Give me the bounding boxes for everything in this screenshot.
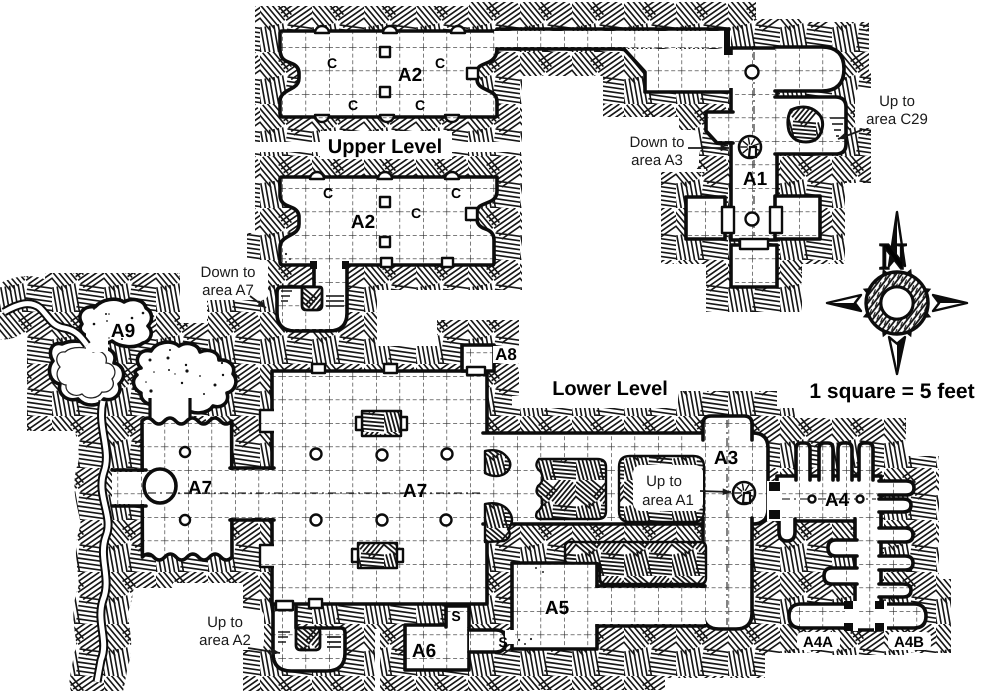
- svg-text:A6: A6: [412, 641, 436, 662]
- svg-text:A8: A8: [495, 345, 517, 364]
- svg-text:C: C: [451, 185, 461, 201]
- svg-text:A5: A5: [545, 598, 570, 619]
- svg-text:Up to: Up to: [879, 93, 915, 110]
- svg-text:C: C: [323, 185, 333, 201]
- svg-text:A7: A7: [188, 478, 212, 499]
- svg-text:A9: A9: [111, 321, 135, 342]
- svg-text:C: C: [327, 55, 337, 71]
- svg-text:A1: A1: [743, 169, 768, 190]
- svg-text:area C29: area C29: [866, 111, 928, 128]
- svg-text:C: C: [411, 205, 421, 221]
- svg-text:A4A: A4A: [803, 634, 833, 651]
- svg-text:A4B: A4B: [894, 634, 924, 651]
- svg-text:A3: A3: [714, 448, 738, 469]
- svg-text:A4: A4: [825, 490, 850, 511]
- svg-text:A2: A2: [398, 65, 422, 86]
- svg-text:area A1: area A1: [642, 492, 694, 509]
- svg-text:A2: A2: [351, 212, 375, 233]
- svg-text:area A3: area A3: [631, 152, 683, 169]
- svg-text:A7: A7: [403, 481, 427, 502]
- svg-text:S: S: [498, 634, 507, 650]
- svg-text:Up to: Up to: [207, 614, 243, 631]
- svg-text:C: C: [435, 55, 445, 71]
- svg-text:1 square = 5 feet: 1 square = 5 feet: [809, 380, 974, 403]
- svg-text:area A7: area A7: [202, 282, 254, 299]
- svg-text:C: C: [415, 97, 425, 113]
- svg-text:area A2: area A2: [199, 632, 251, 649]
- svg-text:Down to: Down to: [200, 264, 255, 281]
- svg-text:N: N: [879, 236, 906, 278]
- svg-text:Up to: Up to: [646, 473, 682, 490]
- svg-text:Upper Level: Upper Level: [328, 136, 442, 158]
- svg-text:C: C: [348, 97, 358, 113]
- svg-text:S: S: [451, 608, 460, 624]
- svg-text:Down to: Down to: [629, 134, 684, 151]
- svg-text:Lower Level: Lower Level: [552, 378, 668, 400]
